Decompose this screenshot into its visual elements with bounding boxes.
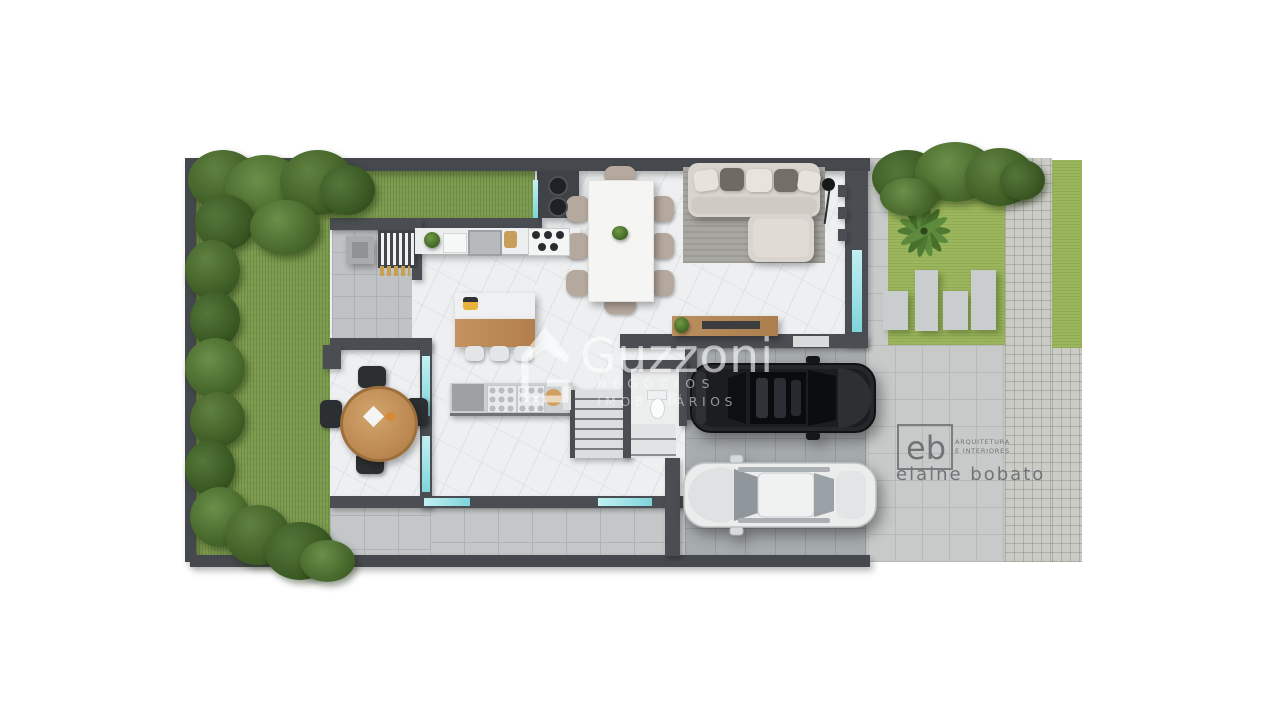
bar-stool bbox=[490, 346, 509, 361]
counter-plant bbox=[424, 232, 440, 248]
dining-table bbox=[588, 180, 654, 302]
patio-chair bbox=[358, 366, 386, 388]
sofa-chaise-cushion bbox=[753, 219, 809, 257]
sofa-pillow bbox=[796, 169, 821, 194]
laundry-sink-basin bbox=[352, 242, 368, 258]
bush bbox=[185, 440, 235, 495]
bush bbox=[250, 200, 320, 255]
east-wall-notch bbox=[838, 185, 847, 197]
eb-studio-line-1: ARQUITETURA bbox=[955, 438, 1010, 446]
concrete-slab bbox=[943, 291, 968, 330]
corner-stub-wall bbox=[323, 345, 341, 369]
right-grass-strip bbox=[1052, 160, 1082, 348]
grill-burner bbox=[548, 197, 568, 217]
paver-right-bottom bbox=[1052, 348, 1082, 562]
floor-plan-render: Guzzoni NEGÓCIOS IMOBILIÁRIOS eb ARQUITE… bbox=[0, 0, 1280, 721]
sedan-car bbox=[682, 453, 878, 537]
west-window-glass-2 bbox=[422, 436, 430, 492]
bar-stool bbox=[465, 346, 484, 361]
bush bbox=[320, 165, 375, 215]
sofa-pillow bbox=[693, 168, 720, 192]
bush bbox=[185, 240, 240, 300]
counter-cabinet bbox=[452, 384, 484, 411]
sofa-seat bbox=[691, 197, 817, 214]
grill-burner bbox=[548, 176, 568, 196]
east-wall-notch bbox=[838, 207, 847, 219]
hedge-bush bbox=[880, 178, 938, 216]
bush bbox=[300, 540, 355, 582]
barbecue-window bbox=[533, 180, 538, 218]
bush bbox=[190, 392, 245, 447]
patio-tiles-south bbox=[430, 508, 685, 556]
sofa-pillow-dark bbox=[774, 169, 798, 192]
cooktop-burner bbox=[544, 231, 552, 239]
bush bbox=[185, 338, 245, 398]
concrete-slab bbox=[915, 270, 938, 331]
watermark-brand: Guzzoni bbox=[580, 333, 774, 380]
fruit-bowl bbox=[385, 412, 396, 421]
cooktop-burner bbox=[532, 231, 540, 239]
dining-chair bbox=[566, 196, 590, 222]
cooktop-burner bbox=[550, 243, 558, 251]
paver-walkway bbox=[1005, 158, 1052, 562]
hanging-utensils bbox=[380, 266, 410, 276]
concrete-slab bbox=[883, 291, 908, 330]
round-wicker-table bbox=[340, 386, 418, 462]
utensil-jar bbox=[504, 231, 517, 248]
watermark-tagline-1: NEGÓCIOS bbox=[597, 376, 716, 391]
east-wall-notch bbox=[838, 229, 847, 241]
architect-name: elaine bobato bbox=[896, 464, 1045, 485]
drying-rack bbox=[378, 230, 418, 268]
cutting-board bbox=[443, 233, 467, 253]
stand-mixer bbox=[463, 297, 478, 310]
garage-west-wall-lower bbox=[665, 458, 680, 556]
south-window-glass bbox=[424, 498, 470, 506]
laundry-south-wall bbox=[330, 338, 432, 350]
sofa-pillow bbox=[746, 169, 772, 192]
watermark-tagline-2: IMOBILIÁRIOS bbox=[597, 394, 737, 409]
patio-chair bbox=[320, 400, 342, 428]
cooktop-burner bbox=[556, 231, 564, 239]
eb-studio-line-2: E INTERIORES bbox=[955, 447, 1010, 455]
dining-chair bbox=[566, 270, 590, 296]
house-g-icon bbox=[513, 327, 577, 405]
kitchen-sink bbox=[468, 230, 502, 256]
tv-soundbar bbox=[702, 321, 760, 329]
stair-landing bbox=[631, 424, 676, 458]
cooktop-burner bbox=[538, 243, 546, 251]
hedge-bush bbox=[1000, 160, 1045, 200]
table-centerpiece-plant bbox=[612, 226, 628, 240]
eb-logo-initials: eb bbox=[906, 432, 946, 464]
east-sliding-door-glass bbox=[852, 250, 862, 332]
sofa-pillow-dark bbox=[720, 168, 744, 191]
entry-door bbox=[793, 336, 829, 347]
concrete-slab bbox=[971, 270, 996, 330]
south-window-glass-2 bbox=[598, 498, 652, 506]
